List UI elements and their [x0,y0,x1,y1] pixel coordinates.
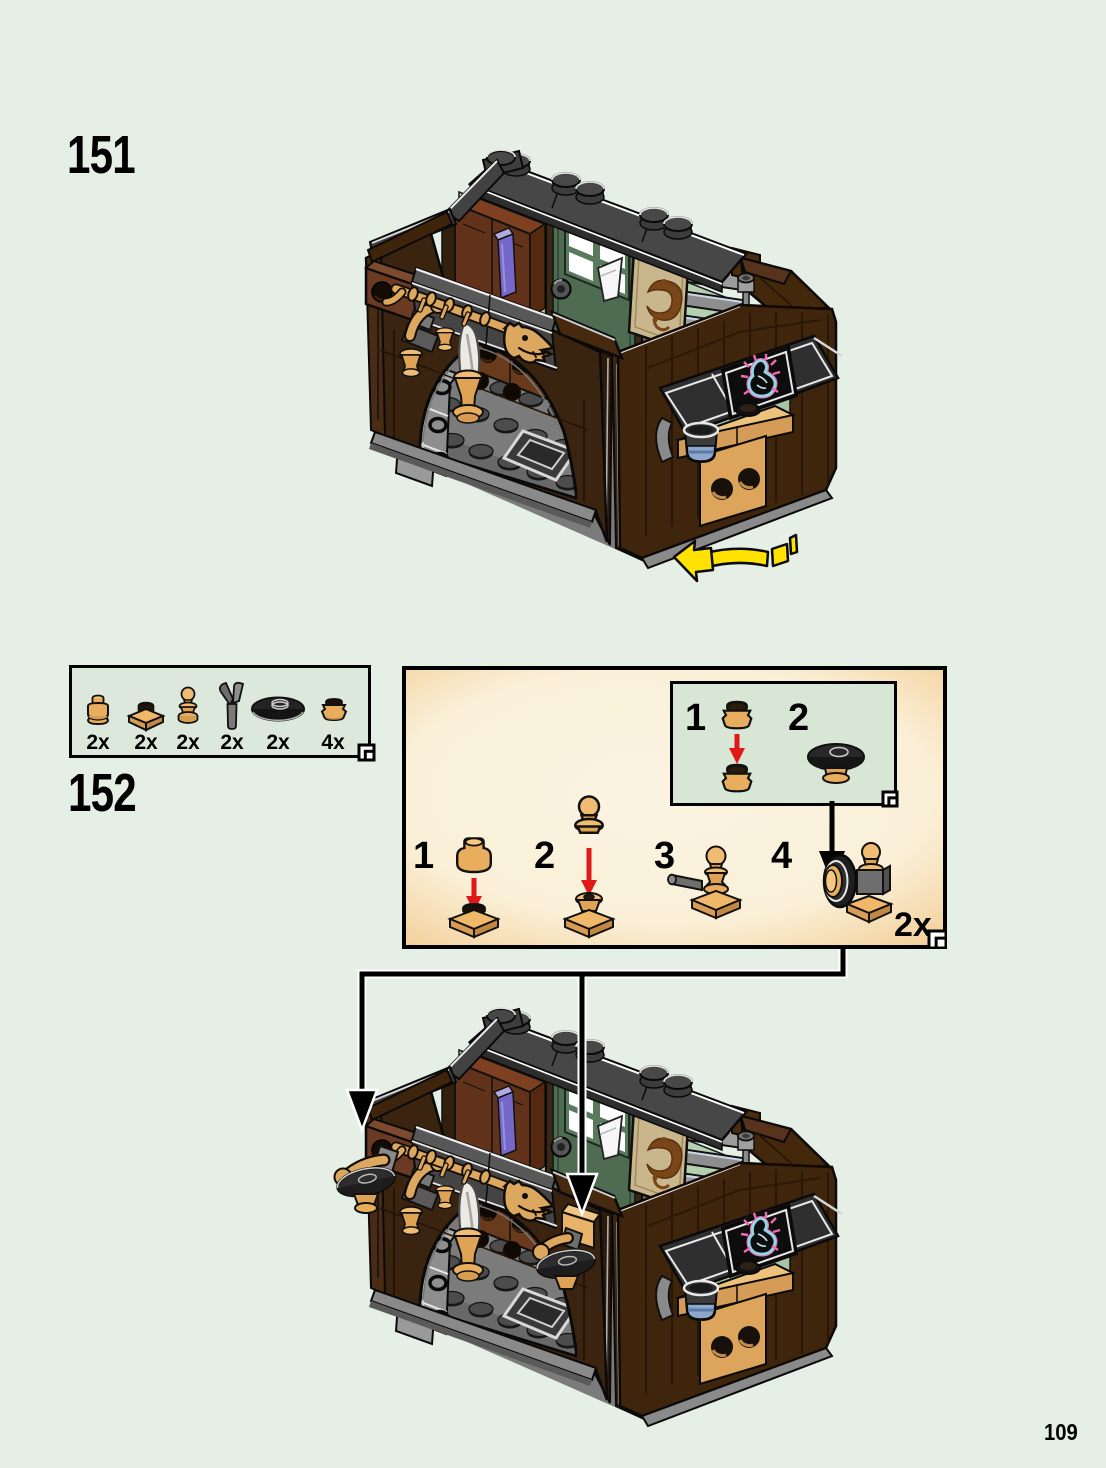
svg-text:2x: 2x [894,906,932,944]
svg-text:4: 4 [771,835,792,877]
svg-text:3: 3 [654,835,675,877]
svg-text:2: 2 [534,835,555,877]
svg-text:2: 2 [788,697,809,739]
svg-text:1: 1 [685,697,706,739]
svg-text:1: 1 [413,835,434,877]
